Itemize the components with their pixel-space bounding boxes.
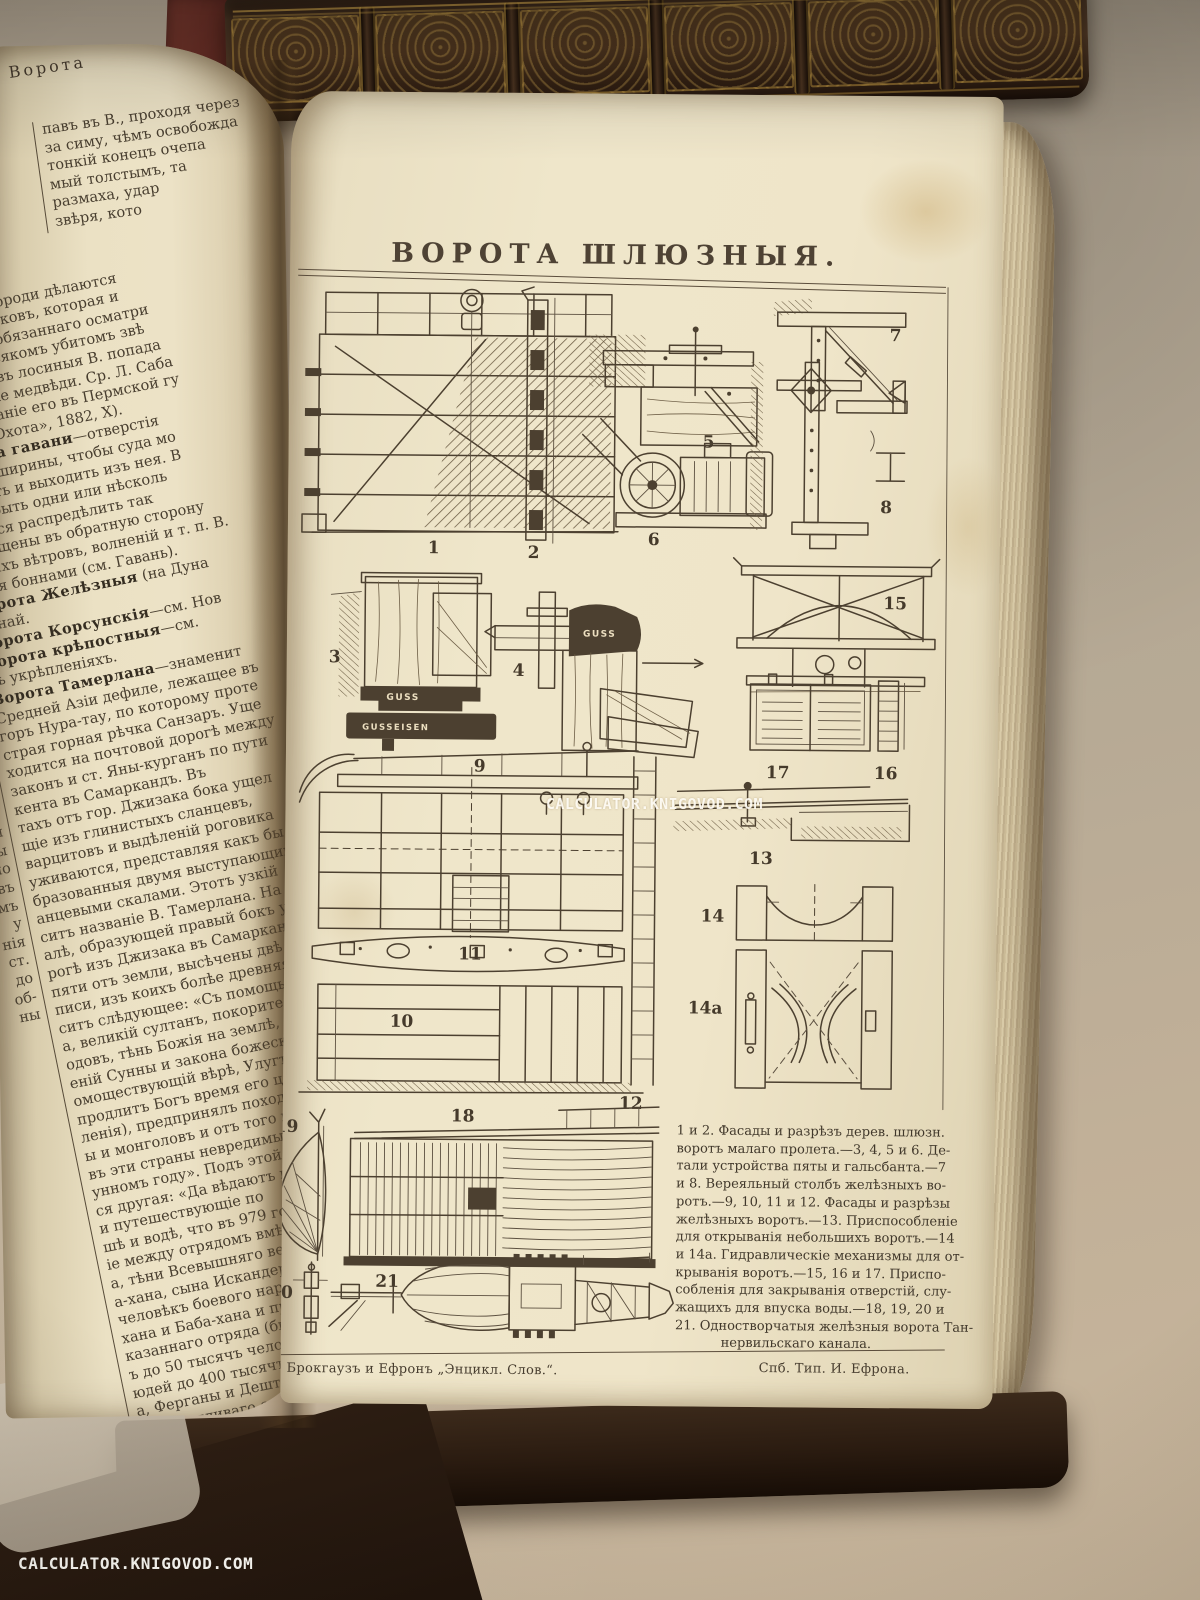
- svg-text:8: 8: [880, 498, 892, 518]
- caption-line: собленія для закрыванія отверстій, слу-: [675, 1282, 917, 1302]
- figure-15-drawing: 15: [733, 558, 940, 694]
- svg-text:21: 21: [375, 1272, 399, 1292]
- caption-line: 1 и 2. Фасады и разрѣзъ дерев. шлюзн.: [677, 1122, 919, 1142]
- svg-text:19: 19: [280, 1117, 298, 1137]
- book-spine-compartment: [664, 2, 795, 92]
- svg-text:2: 2: [528, 543, 540, 563]
- book-spine-compartment: [952, 0, 1083, 83]
- figure-11-drawing: 11: [312, 935, 624, 973]
- svg-text:11: 11: [458, 944, 482, 964]
- caption-line: для открыванія небольшихъ воротъ.—14: [676, 1229, 918, 1249]
- figure-4-drawing: GUSS 4: [484, 592, 703, 758]
- publisher-imprint: Брокгаузъ и Ефронъ „Энцикл. Слов.“.: [287, 1361, 558, 1378]
- figure-17-drawing: 17: [750, 674, 871, 784]
- caption-line: и 14а. Гидравлическіе механизмы для от-: [676, 1246, 918, 1266]
- plate-caption: 1 и 2. Фасады и разрѣзъ дерев. шлюзн.вор…: [675, 1122, 919, 1354]
- figure-3-drawing: GUSS GUSSEISEN 3: [328, 572, 498, 751]
- running-head: Ворота: [7, 52, 87, 82]
- figure-20-drawing: 20: [280, 1262, 327, 1335]
- svg-text:18: 18: [451, 1106, 475, 1126]
- right-page-plate: ВОРОТА ШЛЮЗНЫЯ.: [280, 91, 1003, 1409]
- svg-text:GUSS: GUSS: [386, 693, 419, 703]
- figure-13-drawing: 13: [673, 781, 910, 870]
- svg-text:4: 4: [513, 661, 525, 681]
- svg-text:15: 15: [883, 594, 907, 614]
- book-spine-compartment: [808, 0, 939, 87]
- svg-text:3: 3: [329, 647, 341, 667]
- svg-text:9: 9: [474, 757, 486, 777]
- caption-line: ротъ.—9, 10, 11 и 12. Фасады и разрѣзы: [676, 1193, 918, 1213]
- caption-line: желѣзныхъ воротъ.—13. Приспособленіе: [676, 1211, 918, 1231]
- caption-line: крыванія воротъ.—15, 16 и 17. Приспо-: [675, 1264, 917, 1284]
- caption-line: и 8. Вереяльный столбъ желѣзныхъ во-: [676, 1175, 918, 1195]
- svg-text:14a: 14a: [688, 998, 723, 1018]
- figure-19-drawing: 19: [280, 1109, 326, 1260]
- figure-7-drawing: 7: [773, 298, 908, 413]
- figure-1-drawing: 1: [302, 288, 620, 560]
- caption-line: воротъ малаго пролета.—3, 4, 5 и 6. Де-: [676, 1140, 918, 1160]
- caption-line: жащихъ для впуска воды.—18, 19, 20 и: [675, 1299, 917, 1319]
- caption-line: тали устройства пяты и гальсбанта.—7: [676, 1158, 918, 1178]
- figure-12-drawing: 12: [619, 757, 656, 1114]
- book-spine-compartment: [375, 11, 506, 101]
- svg-text:1: 1: [428, 538, 440, 558]
- figure-14a-drawing: 14a: [687, 949, 892, 1089]
- svg-text:GUSS: GUSS: [583, 629, 616, 639]
- svg-text:GUSSEISEN: GUSSEISEN: [362, 723, 429, 734]
- figure-14-drawing: 14: [700, 884, 893, 946]
- svg-text:7: 7: [890, 326, 902, 346]
- photo-of-open-encyclopedia: Ворота павъ въ В., проходя черезза симу,…: [0, 0, 1200, 1600]
- svg-text:13: 13: [749, 849, 773, 869]
- svg-text:16: 16: [874, 764, 898, 784]
- svg-text:17: 17: [766, 763, 790, 783]
- figure-9-drawing: 9: [298, 740, 638, 939]
- svg-text:10: 10: [390, 1012, 414, 1032]
- svg-text:6: 6: [648, 530, 660, 550]
- printer-imprint: Спб. Тип. И. Ефрона.: [759, 1361, 910, 1377]
- caption-line: 21. Одностворчатыя желѣзныя ворота Тан-: [675, 1317, 917, 1337]
- book-spine-compartment: [519, 6, 650, 96]
- figure-10-drawing: 10: [299, 984, 644, 1095]
- svg-text:14: 14: [700, 907, 724, 927]
- svg-text:20: 20: [280, 1283, 293, 1303]
- figure-16-drawing: 16: [874, 681, 905, 784]
- plate-border-rule: [941, 288, 950, 1110]
- figure-18-drawing: 18: [343, 1104, 658, 1268]
